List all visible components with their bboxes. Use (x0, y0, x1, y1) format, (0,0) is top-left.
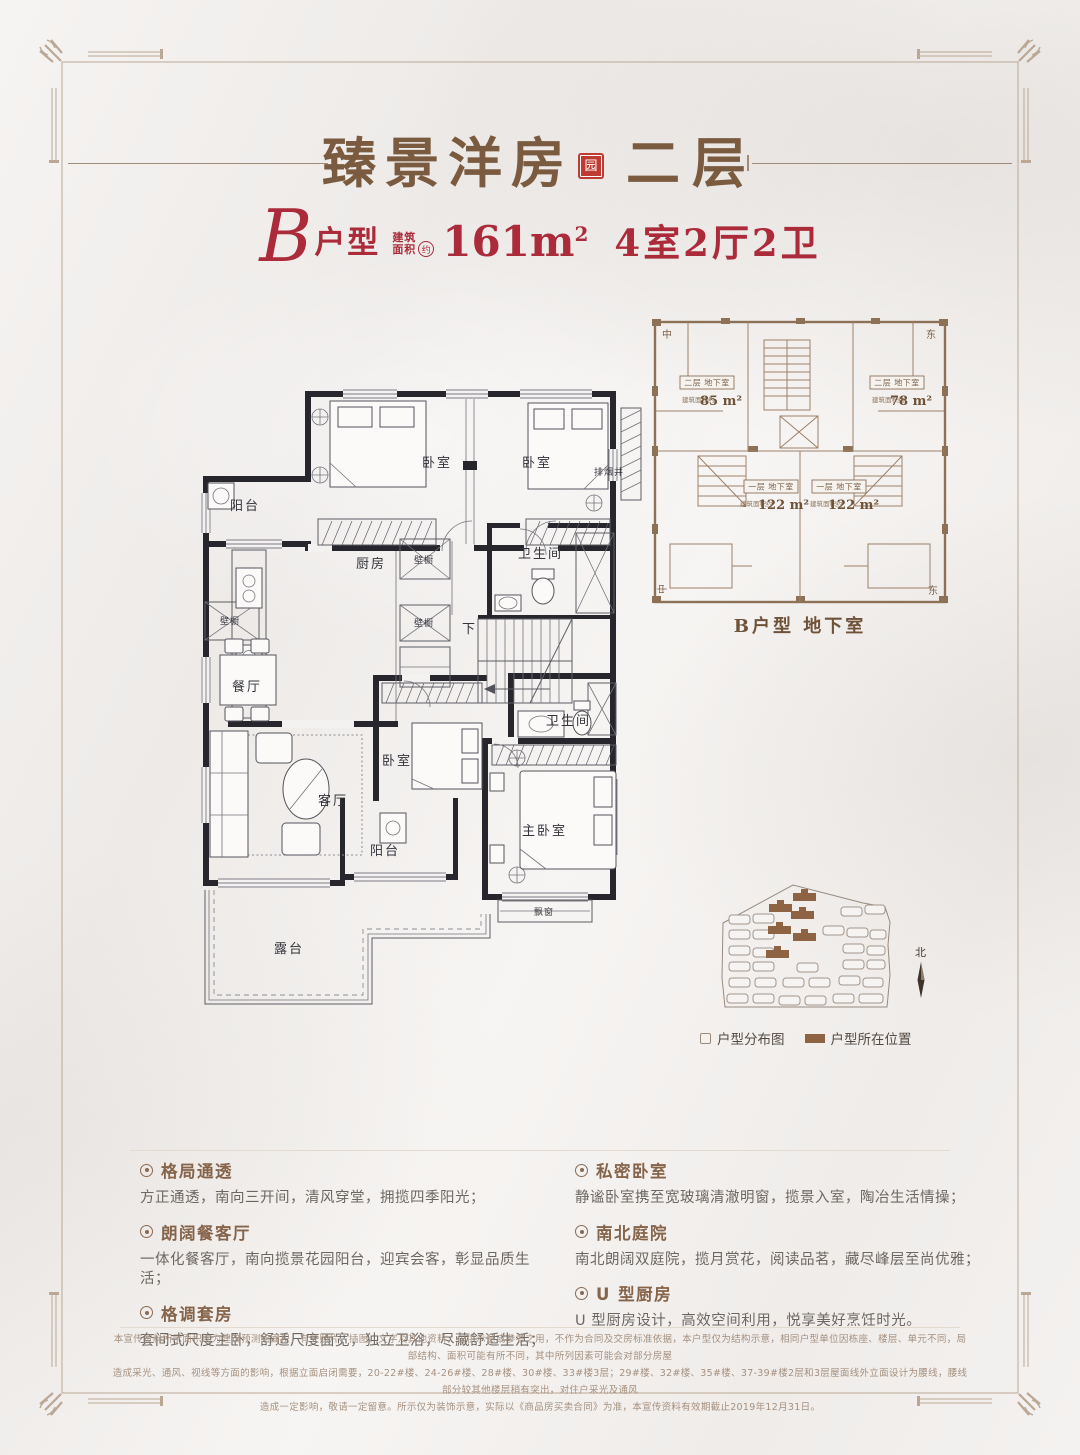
basement-unit-3: 一层 地下室 建筑面积约 122 m² (740, 480, 809, 513)
north-arrow-icon: 北 (915, 946, 926, 998)
svg-text:85 m²: 85 m² (700, 394, 742, 409)
page-title: 臻景洋房 (322, 136, 574, 190)
unit-summary: B 户型 建筑 面积 约 161m2 4室2厅2卫 (0, 196, 1080, 266)
furniture (208, 401, 616, 883)
svg-text:一层 地下室: 一层 地下室 (816, 482, 862, 492)
divider-top (130, 1150, 950, 1151)
approx-circle: 约 (418, 241, 434, 257)
basement-unit-1: 二层 地下室 建筑面积约 85 m² (680, 376, 742, 409)
distribution-icon (700, 1033, 711, 1044)
disclaimer-line: 造成采光、通风、视线等方面的影响，根据立面启闭需要，20-22#楼、24-26#… (110, 1365, 970, 1399)
divider-bottom (120, 1327, 960, 1328)
seal-icon: 园 (578, 153, 604, 179)
room-label-living: 客厅 (318, 793, 348, 809)
unit-area: 161m2 (442, 221, 588, 266)
feature-item: 南北庭院 南北朗阔双庭院，揽月赏花，阅读品茗，藏尽峰层至尚优雅； (575, 1220, 985, 1271)
basement-corner-tl: 中 (662, 328, 672, 341)
svg-text:二层 地下室: 二层 地下室 (874, 378, 920, 388)
room-label-exhaust: 排烟井 (594, 466, 624, 478)
room-label-closet-2: 壁橱 (414, 617, 434, 629)
feature-item: U 型厨房 U 型厨房设计，高效空间利用，悦享美好烹饪时光。 (575, 1281, 985, 1332)
room-label-kitchen: 厨房 (356, 556, 386, 572)
bullet-icon (575, 1164, 588, 1177)
room-label-closet-1: 壁橱 (414, 554, 434, 566)
svg-text:二层 地下室: 二层 地下室 (684, 378, 730, 388)
room-label-bath-lower: 卫生间 (546, 714, 591, 729)
site-map-legend: 户型分布图 户型所在位置 (700, 1028, 912, 1048)
legend-distribution: 户型分布图 (700, 1028, 785, 1048)
basement-corner-tr: 东 (926, 328, 936, 341)
disclaimer-line: 本宣传资料所示面积均为建筑预测绘面积，有关照片、插图、文字及其他资料，仅供示意或… (110, 1331, 970, 1365)
legend-location: 户型所在位置 (805, 1028, 912, 1048)
svg-text:78 m²: 78 m² (890, 394, 932, 409)
room-label-master: 主卧室 (522, 823, 567, 839)
room-label-terrace: 露台 (274, 942, 304, 957)
svg-text:122 m²: 122 m² (828, 498, 879, 513)
bullet-icon (140, 1225, 153, 1238)
stairs-down-label: 下 (462, 622, 477, 637)
basement-plan: 中 东 中 东 二层 地下室 建筑面积约 85 m² 二层 地下室 建筑面积约 … (628, 296, 978, 656)
feature-item: 朗阔餐客厅 一体化餐客厅，南向揽景花园阳台，迎宾会客，彰显品质生活； (140, 1220, 550, 1290)
room-label-bedroom-mid: 卧室 (382, 753, 412, 769)
area-prefix: 建筑 面积 约 (392, 232, 434, 257)
site-buildings-highlight (766, 889, 816, 958)
room-label-bedroom-tr: 卧室 (522, 455, 552, 471)
bullet-icon (140, 1306, 153, 1319)
bullet-icon (575, 1225, 588, 1238)
main-floor-plan: 阳台 卧室 卧室 排烟井 厨房 壁橱 壁橱 卫生间 下 壁橱 餐厅 客厅 卧室 … (190, 383, 660, 1023)
svg-text:122 m²: 122 m² (758, 498, 809, 513)
room-label-bath-upper: 卫生间 (518, 547, 563, 562)
terrace-outline (205, 890, 490, 1004)
floor-title: 二层 (626, 136, 758, 190)
svg-text:一层 地下室: 一层 地下室 (748, 482, 794, 492)
location-icon (805, 1034, 825, 1043)
room-label-dining: 餐厅 (232, 679, 262, 695)
room-label-bedroom-tl: 卧室 (422, 455, 452, 471)
feature-item: 格局通透 方正通透，南向三开间，清风穿堂，拥揽四季阳光； (140, 1158, 550, 1209)
page-heading: 臻景洋房 园 二层 (0, 128, 1080, 198)
unit-rooms: 4室2厅2卫 (614, 225, 820, 266)
room-label-bay-window: 飘窗 (534, 906, 554, 918)
room-label-balcony-south: 阳台 (370, 844, 400, 859)
unit-letter: B (259, 207, 312, 266)
features-right: 私密卧室 静谧卧室携至宽玻璃清澈明窗，揽景入室，陶冶生活情操； 南北庭院 南北朗… (575, 1158, 985, 1343)
basement-caption: B户型 地下室 (734, 615, 866, 637)
svg-text:北: 北 (915, 946, 926, 959)
disclaimer-line: 造成一定影响，敬请一定留意。所示仅为装饰示意，实际以《商品房买卖合同》为准，本宣… (110, 1399, 970, 1416)
room-label-balcony-top: 阳台 (230, 499, 260, 514)
feature-item: 私密卧室 静谧卧室携至宽玻璃清澈明窗，揽景入室，陶冶生活情操； (575, 1158, 985, 1209)
bullet-icon (140, 1164, 153, 1177)
unit-type-label: 户型 (314, 228, 380, 266)
basement-corner-br: 东 (928, 584, 938, 597)
room-label-closet-dining: 壁橱 (220, 615, 240, 627)
disclaimer: 本宣传资料所示面积均为建筑预测绘面积，有关照片、插图、文字及其他资料，仅供示意或… (110, 1331, 970, 1416)
site-buildings-outline (727, 905, 886, 1005)
basement-corner-bl: 中 (656, 584, 669, 594)
stairs (478, 619, 572, 703)
basement-unit-2: 二层 地下室 建筑面积约 78 m² (870, 376, 932, 409)
bullet-icon (575, 1287, 588, 1300)
